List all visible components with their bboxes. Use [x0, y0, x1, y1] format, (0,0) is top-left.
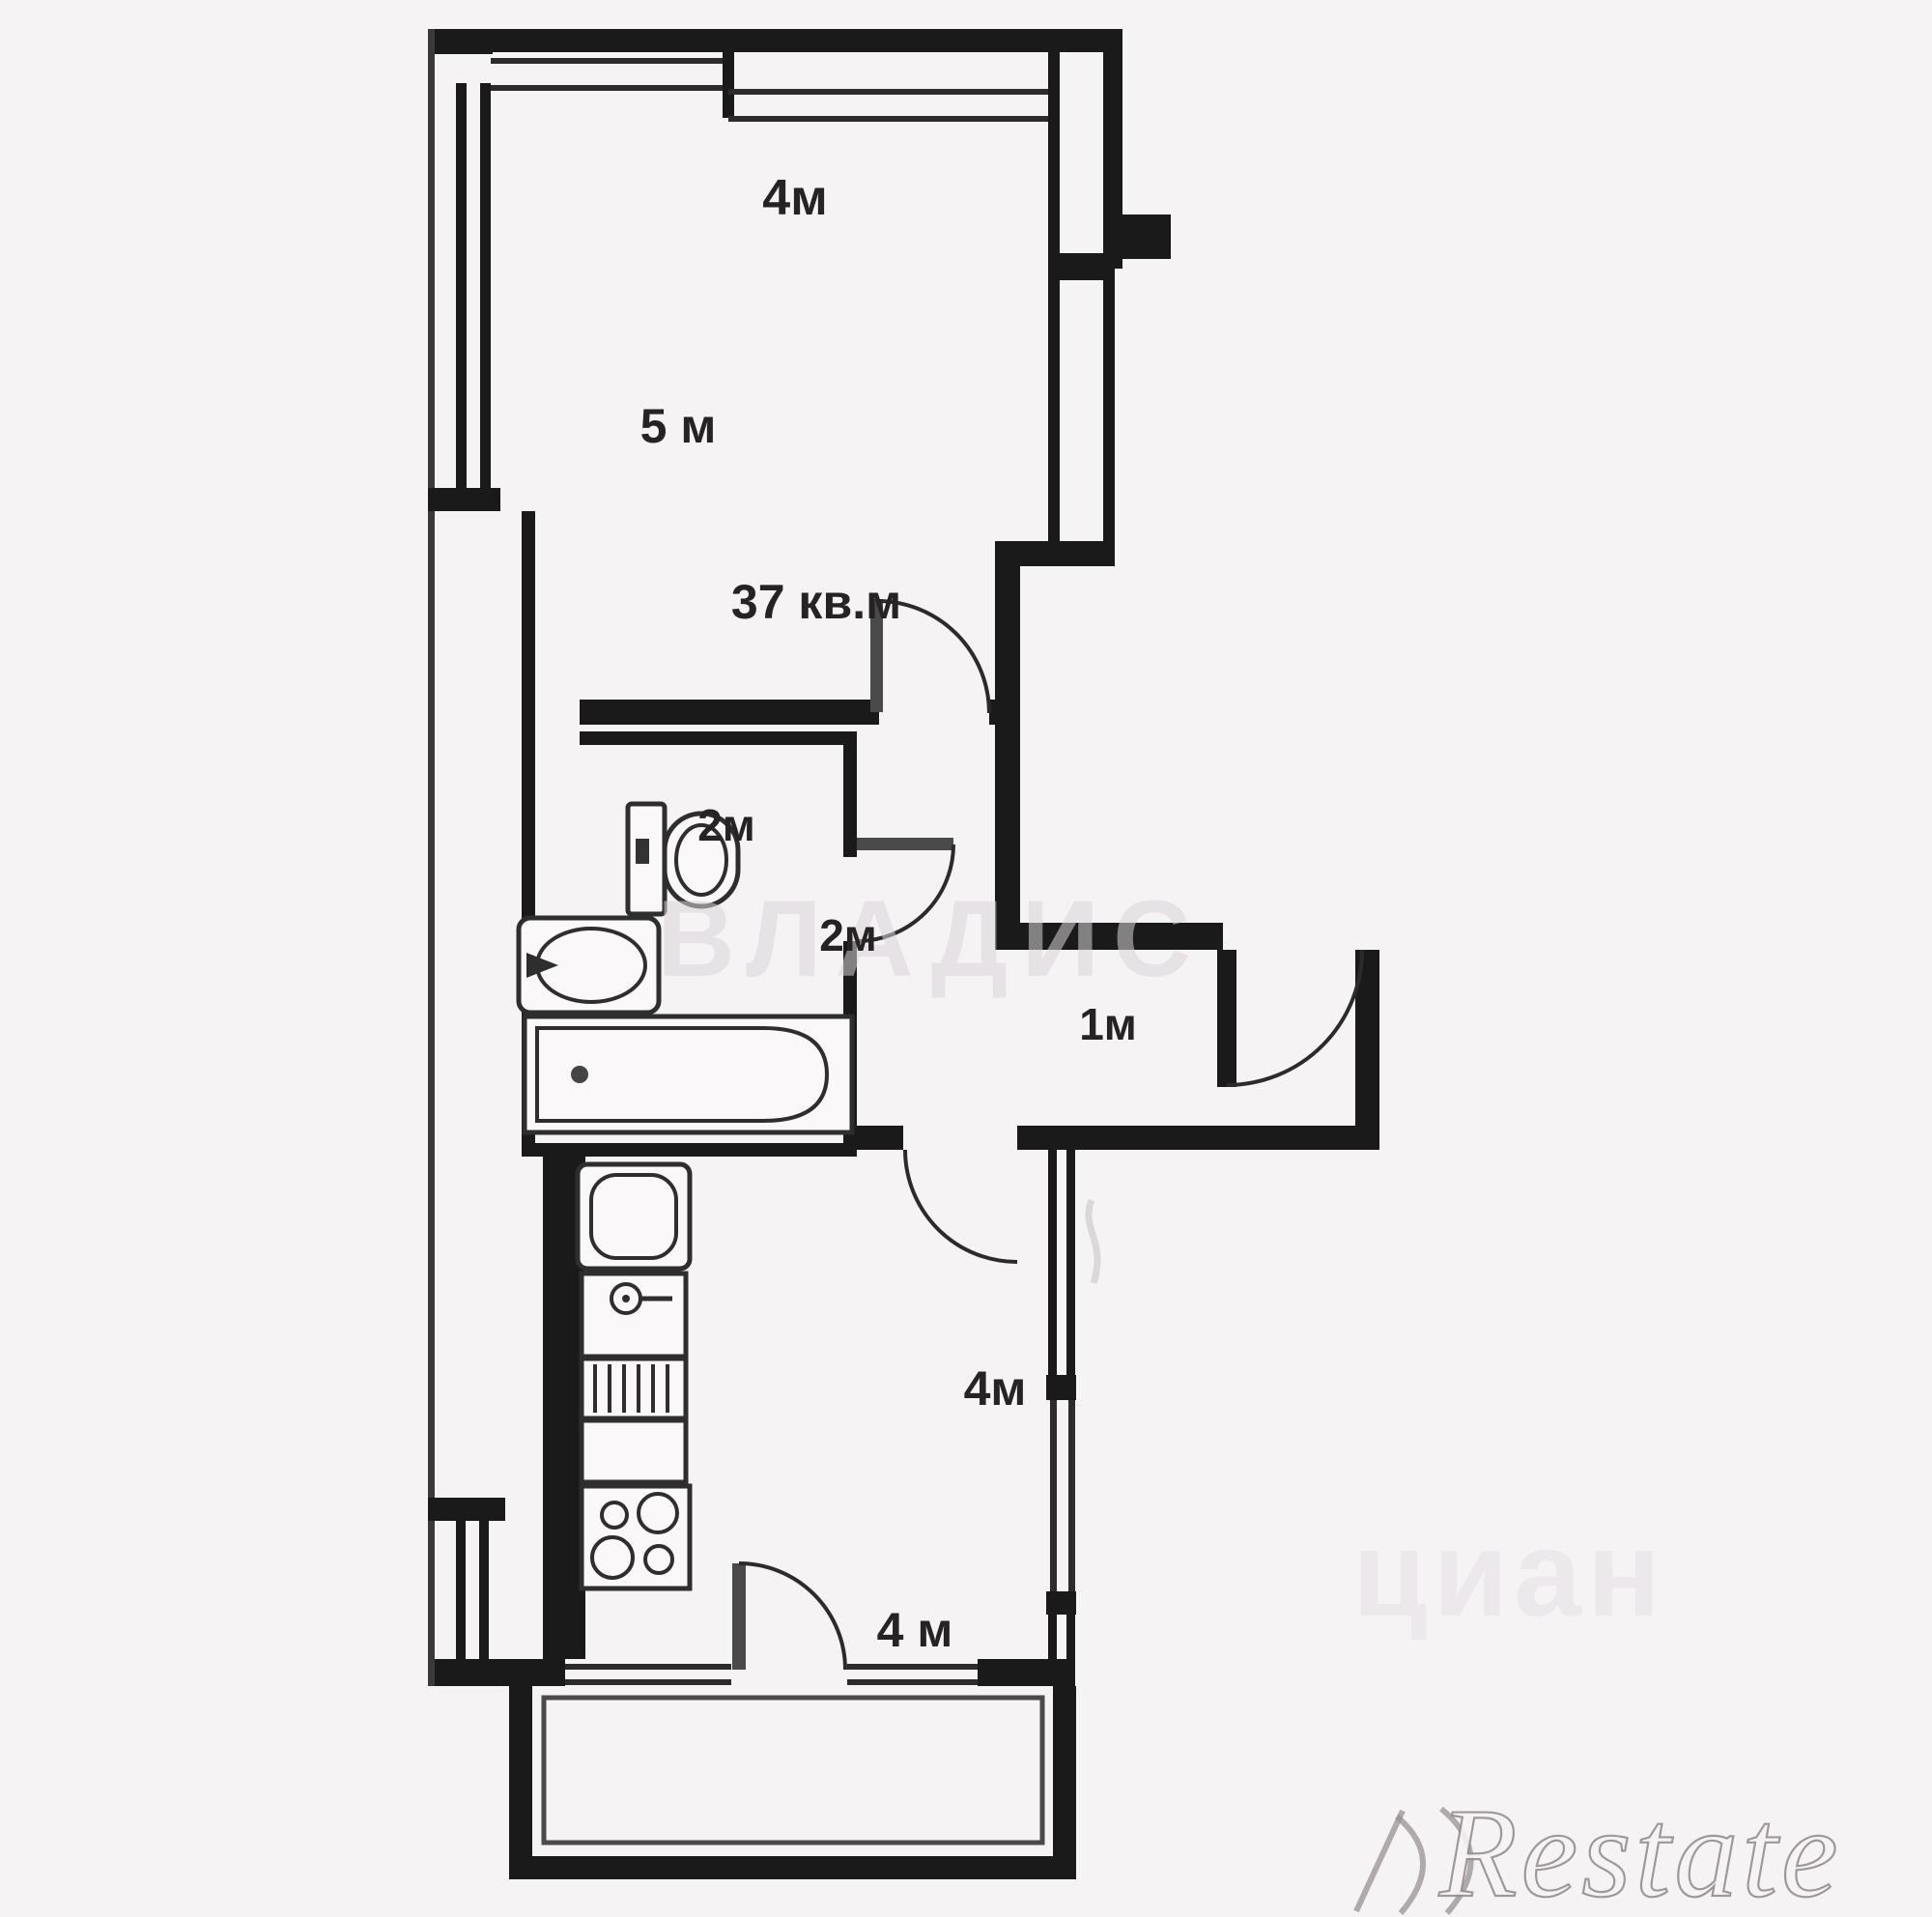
window-line — [565, 1664, 731, 1670]
wall-segment — [522, 1143, 857, 1157]
balcony-wall — [509, 1856, 1076, 1879]
watermark-cian: циан — [1352, 1505, 1666, 1642]
wall-segment — [1017, 1126, 1379, 1150]
window-line — [1048, 1150, 1057, 1375]
kitchen-counter — [582, 1359, 686, 1482]
window-line — [1048, 52, 1060, 549]
wall-segment — [435, 29, 493, 54]
window-line — [565, 1679, 731, 1685]
label-hall-width: 1м — [1079, 999, 1137, 1049]
wall-segment — [428, 29, 1122, 52]
wall-segment — [435, 1659, 565, 1686]
window-line — [1068, 1400, 1075, 1591]
kitchen-drainer — [582, 1359, 686, 1418]
window-line — [456, 1521, 466, 1659]
lower-room-right-wall — [1046, 1150, 1076, 1686]
window-line — [847, 1679, 978, 1685]
window-line — [728, 89, 1053, 95]
door-arc-hall — [905, 1150, 1017, 1262]
bathtub-drain — [571, 1066, 588, 1083]
label-lower-room-bottom-width: 4 м — [877, 1603, 953, 1657]
door-arc-entrance — [1227, 950, 1362, 1085]
wall-segment — [857, 1126, 903, 1150]
label-wc-width: 2м — [697, 800, 755, 850]
kitchen-sink — [582, 1273, 686, 1357]
wall-segment — [989, 700, 1020, 725]
wall-segment — [428, 29, 435, 1686]
window-line — [491, 58, 728, 64]
floor-plan-drawing: ВЛАДИС циан Restate 4м 5 м 37 кв.м 2м 2м… — [0, 0, 1932, 1917]
wall-sill — [1048, 253, 1115, 280]
washing-machine — [578, 1164, 690, 1269]
balcony-wall — [1053, 1686, 1076, 1879]
floor-plan-canvas: ВЛАДИС циан Restate 4м 5 м 37 кв.м 2м 2м… — [0, 0, 1932, 1917]
window-line — [847, 1664, 978, 1670]
label-top-room-width: 4м — [762, 170, 827, 226]
watermark-agency: ВЛАДИС — [657, 878, 1205, 999]
wall-sill — [1046, 1375, 1076, 1400]
door-leaf-bathroom — [857, 838, 953, 850]
bottom-wall — [435, 1659, 1075, 1686]
window-line — [1050, 1400, 1057, 1591]
label-top-room-height: 5 м — [640, 399, 717, 453]
watermark-pin-icon — [1089, 1200, 1097, 1283]
stove — [582, 1486, 690, 1588]
wall-sill — [428, 1498, 505, 1521]
window-line — [480, 83, 491, 493]
window-line — [456, 83, 467, 493]
kitchen-counter-top — [582, 1420, 686, 1482]
toilet-button — [636, 839, 649, 864]
label-bath-width: 2м — [819, 910, 877, 960]
wall-segment — [580, 700, 879, 725]
wall-sill — [428, 488, 500, 511]
window-line — [1066, 1150, 1075, 1375]
washing-machine-body — [578, 1164, 690, 1269]
window-line — [479, 1521, 489, 1659]
balcony-wall — [509, 1686, 532, 1879]
label-lower-room-width: 4м — [964, 1361, 1027, 1416]
wall-segment — [978, 1659, 1075, 1686]
label-total-area: 37 кв.м — [731, 575, 901, 629]
window-line — [1103, 52, 1115, 549]
balcony-inner-line — [544, 1698, 1042, 1843]
exterior-walls — [428, 29, 1171, 1686]
window-line — [491, 85, 728, 91]
watermark-restate: Restate — [1438, 1782, 1842, 1917]
wall-sill — [1046, 1591, 1076, 1615]
door-arc-balcony — [739, 1563, 845, 1670]
bathtub — [525, 1016, 852, 1132]
wall-segment — [580, 731, 857, 745]
wall-segment — [843, 731, 857, 857]
door-leaf-entrance — [1217, 950, 1236, 1087]
wall-segment — [723, 52, 734, 118]
door-leaf-balcony — [732, 1563, 746, 1670]
sink — [519, 918, 659, 1013]
balcony — [509, 1686, 1076, 1879]
wall-pilaster — [1115, 215, 1171, 259]
kitchen-sink-drain — [622, 1295, 630, 1302]
window-line — [728, 116, 1053, 122]
